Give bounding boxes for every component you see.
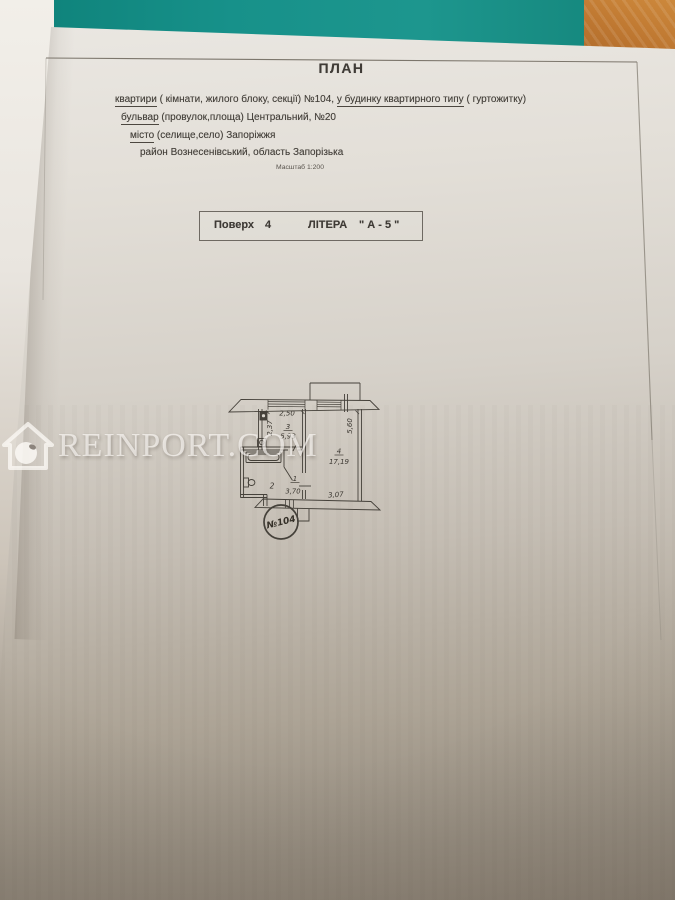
house-logo-icon bbox=[2, 420, 54, 472]
dim-right-label: 5,60 bbox=[346, 418, 354, 434]
photo-of-floor-plan-document: ПЛАН квартири ( кімнати, жилого блоку, с… bbox=[0, 0, 675, 900]
room4-area: 17,19 bbox=[329, 458, 350, 466]
window-hatch-left bbox=[268, 399, 305, 410]
room4-number: 4 bbox=[337, 448, 341, 456]
kitchen-stove-icon bbox=[260, 412, 267, 421]
room1-number: 1 bbox=[293, 475, 297, 483]
entrance-step bbox=[298, 508, 310, 521]
toilet-icon bbox=[244, 478, 255, 487]
top-exterior-wall bbox=[229, 394, 379, 412]
balcony-divider-tick bbox=[345, 394, 348, 412]
bottom-exterior-wall bbox=[255, 499, 380, 521]
watermark-text: REINPORT.COM bbox=[58, 427, 318, 465]
balcony-outline bbox=[310, 383, 360, 400]
apartment-stamp: №104 bbox=[264, 505, 298, 539]
dim-top-label: 2,50 bbox=[279, 410, 295, 418]
stamp-number: №104 bbox=[265, 515, 297, 532]
dim-bottom-label: 3,07 bbox=[328, 490, 345, 499]
watermark: REINPORT.COM bbox=[2, 420, 318, 472]
window-hatch-right bbox=[317, 400, 341, 410]
room2-number: 2 bbox=[270, 482, 275, 491]
room1-area: 3,70 bbox=[285, 488, 300, 496]
